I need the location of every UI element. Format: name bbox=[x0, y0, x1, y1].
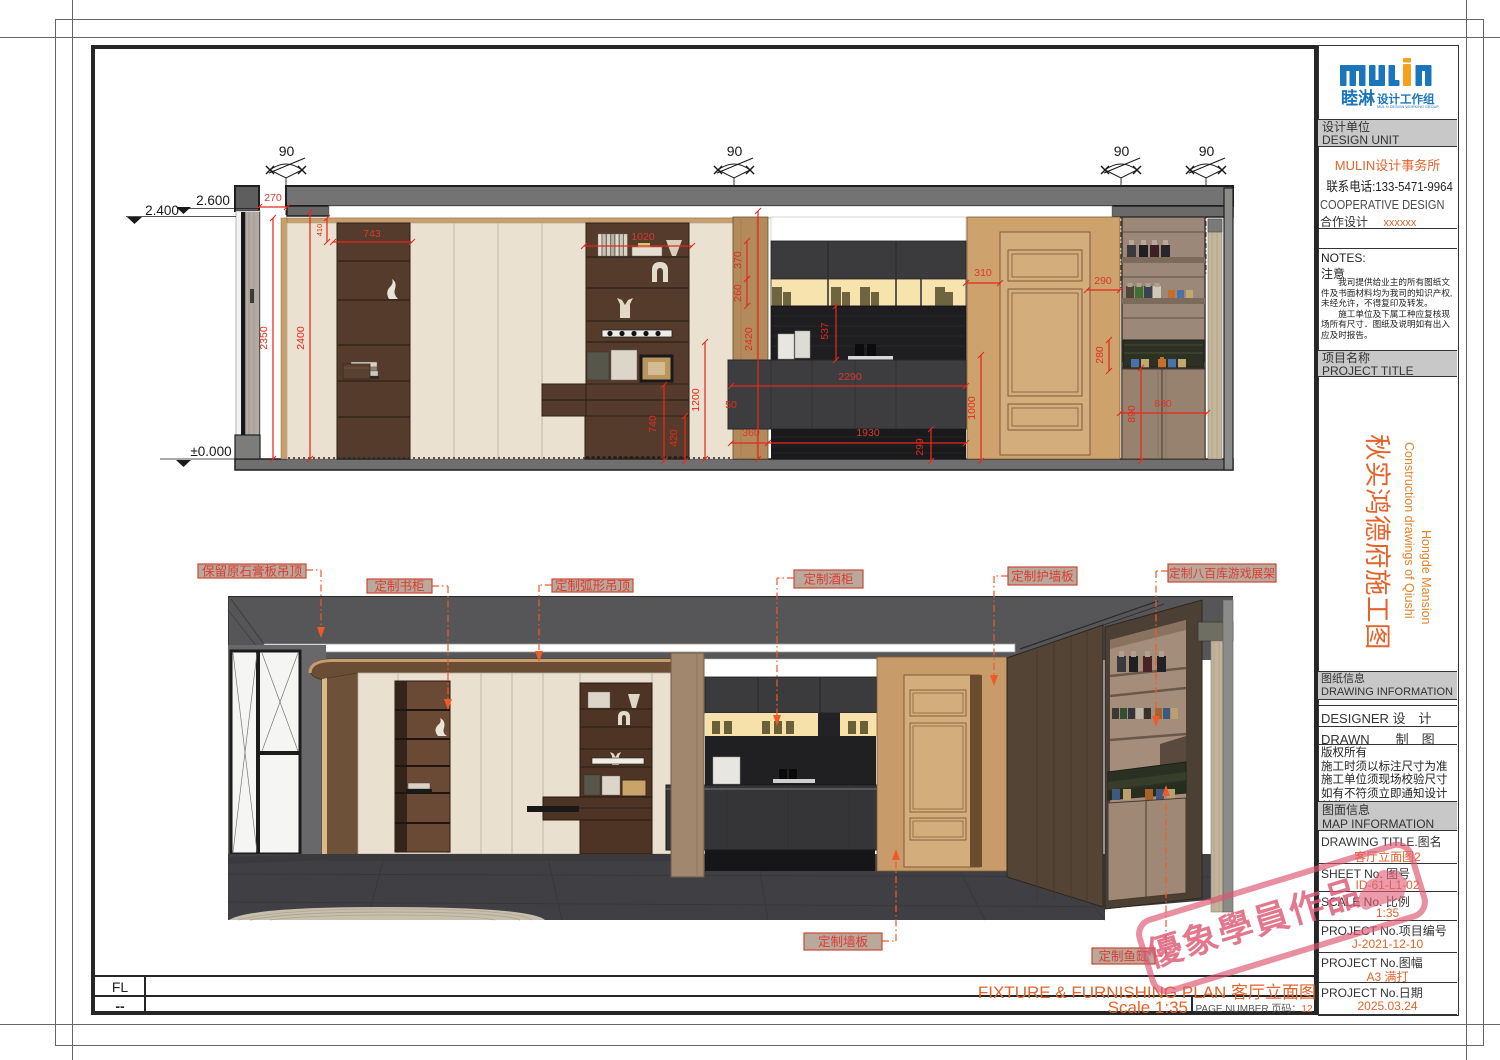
svg-text:2350: 2350 bbox=[258, 326, 270, 350]
svg-text:830: 830 bbox=[1154, 398, 1172, 410]
svg-text:740: 740 bbox=[647, 415, 659, 433]
svg-text:定制酒柜: 定制酒柜 bbox=[803, 572, 853, 587]
svg-text:定制八百库游戏展架: 定制八百库游戏展架 bbox=[1169, 567, 1275, 581]
svg-text:定制护墙板: 定制护墙板 bbox=[1011, 569, 1074, 584]
svg-text:1020: 1020 bbox=[631, 231, 655, 243]
svg-text:90: 90 bbox=[727, 143, 743, 159]
svg-text:420: 420 bbox=[668, 429, 680, 447]
svg-text:定制弧形吊顶: 定制弧形吊顶 bbox=[555, 578, 631, 593]
svg-text:260: 260 bbox=[732, 284, 744, 302]
svg-text:90: 90 bbox=[1114, 143, 1130, 159]
svg-text:280: 280 bbox=[1094, 346, 1106, 364]
svg-text:1930: 1930 bbox=[856, 427, 880, 439]
svg-text:299: 299 bbox=[914, 438, 926, 456]
svg-text:2290: 2290 bbox=[838, 371, 862, 383]
svg-text:定制墙板: 定制墙板 bbox=[818, 934, 869, 949]
svg-text:90: 90 bbox=[279, 143, 295, 159]
svg-text:743: 743 bbox=[363, 228, 381, 240]
svg-text:537: 537 bbox=[819, 322, 831, 340]
svg-text:1000: 1000 bbox=[966, 396, 978, 420]
svg-text:270: 270 bbox=[264, 192, 282, 204]
svg-text:定制书柜: 定制书柜 bbox=[374, 579, 424, 594]
svg-text:890: 890 bbox=[1126, 405, 1138, 423]
svg-text:360: 360 bbox=[742, 427, 760, 439]
svg-text:2.400: 2.400 bbox=[145, 203, 179, 218]
svg-text:保留原石膏板吊顶: 保留原石膏板吊顶 bbox=[202, 564, 303, 579]
svg-text:410: 410 bbox=[315, 224, 324, 237]
svg-text:370: 370 bbox=[732, 251, 744, 269]
svg-text:1200: 1200 bbox=[690, 388, 702, 412]
svg-text:310: 310 bbox=[974, 267, 992, 279]
svg-text:90: 90 bbox=[1199, 143, 1215, 159]
svg-text:50: 50 bbox=[725, 399, 737, 411]
svg-text:290: 290 bbox=[1094, 275, 1112, 287]
svg-text:2.600: 2.600 bbox=[196, 193, 230, 208]
svg-text:±0.000: ±0.000 bbox=[190, 444, 231, 459]
svg-text:2400: 2400 bbox=[295, 326, 307, 350]
svg-text:2420: 2420 bbox=[743, 327, 755, 351]
